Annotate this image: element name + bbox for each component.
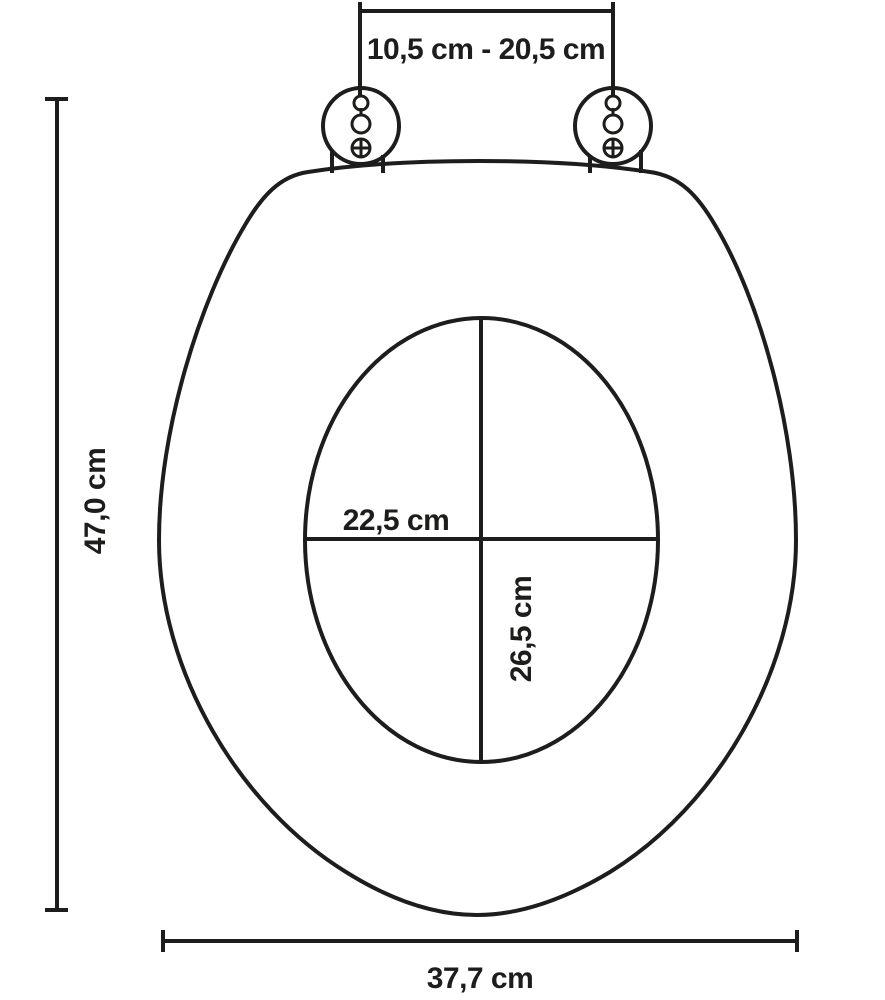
- left-hinge-hole-middle: [352, 115, 370, 133]
- height-dimension: 47,0 cm: [45, 99, 112, 910]
- height-label: 47,0 cm: [79, 448, 112, 555]
- inner-width-label: 22,5 cm: [343, 504, 450, 537]
- left-hinge: [323, 88, 399, 173]
- diagram-drawing: 10,5 cm - 20,5 cm: [0, 0, 885, 1000]
- right-hinge: [575, 88, 651, 173]
- width-label: 37,7 cm: [427, 962, 534, 995]
- left-hinge-hole-top: [354, 96, 368, 110]
- right-hinge-hole-top: [606, 96, 620, 110]
- hinge-span-label: 10,5 cm - 20,5 cm: [367, 33, 605, 66]
- toilet-seat-dimension-diagram: 10,5 cm - 20,5 cm: [0, 0, 885, 1000]
- inner-depth-label: 26,5 cm: [505, 576, 538, 683]
- width-dimension: 37,7 cm: [163, 930, 797, 995]
- hinge-span-dimension: 10,5 cm - 20,5 cm: [360, 2, 613, 96]
- right-hinge-hole-middle: [604, 115, 622, 133]
- inner-opening: 22,5 cm 26,5 cm: [305, 318, 658, 762]
